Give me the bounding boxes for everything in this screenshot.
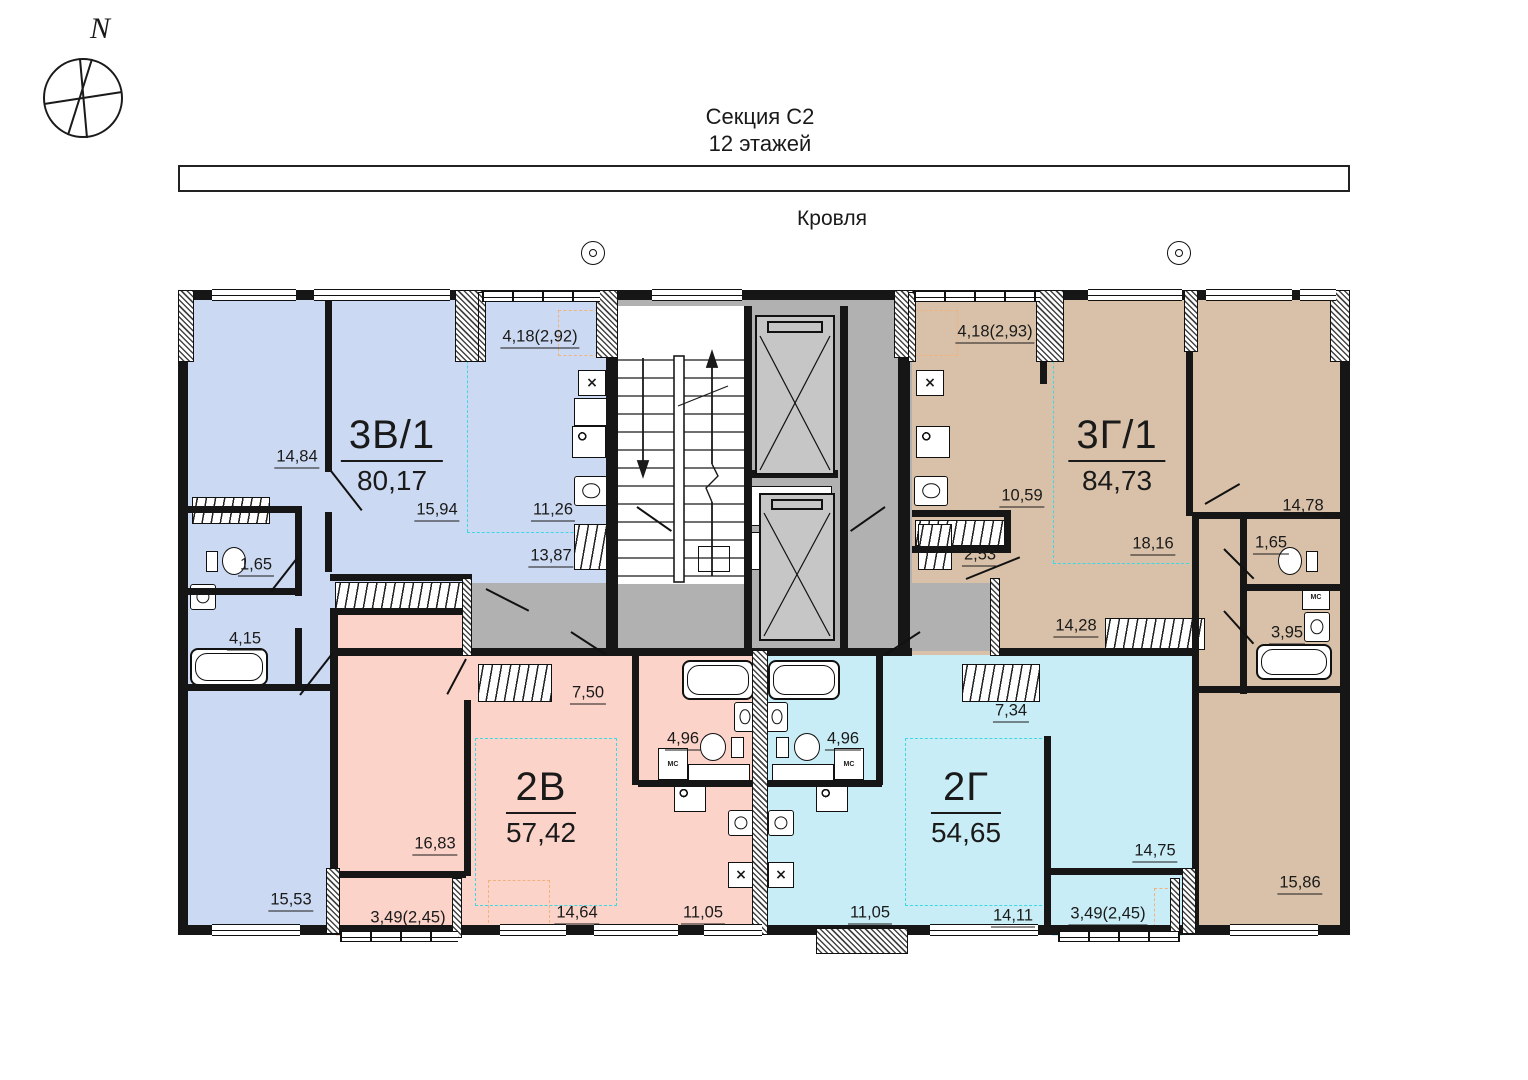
wall — [295, 506, 302, 596]
room-label-blue-kitchen: 11,26 — [531, 501, 575, 522]
apartment-2g-name: 2Г — [931, 765, 1001, 814]
roof-vent — [581, 241, 605, 265]
apartment-2g-area: 54,65 — [931, 814, 1001, 849]
toilet — [776, 732, 820, 762]
floor-plan-canvas: N Секция С2 12 этажей Кровля МСМСМС — [0, 0, 1528, 1080]
room-label-pink-kitchen: 11,05 — [681, 904, 725, 925]
hatched-wall-pier — [178, 290, 194, 362]
bathtub — [768, 660, 840, 700]
window — [594, 924, 678, 936]
room-label-tan-balcony: 4,18(2,93) — [955, 323, 1034, 344]
bathtub — [1256, 644, 1332, 680]
room-label-tan-living: 18,16 — [1130, 535, 1175, 556]
sink — [914, 476, 948, 506]
room-label-cyan-balcony: 3,49(2,45) — [1068, 905, 1147, 926]
x-symbol-box — [578, 370, 606, 396]
hatched-wall-pier — [452, 878, 462, 938]
wall — [330, 608, 472, 615]
hatched-wall-pier — [462, 578, 472, 656]
x-symbol-box — [916, 370, 944, 396]
apartment-3v1-area: 80,17 — [341, 462, 443, 497]
sink — [728, 810, 754, 836]
roof-line — [178, 190, 1350, 192]
wall — [1044, 736, 1051, 928]
apartment-2g-title: 2Г 54,65 — [931, 765, 1001, 849]
section-title-block: Секция С2 12 этажей — [660, 103, 860, 157]
compass: N — [30, 8, 140, 143]
hatched-wall-pier — [478, 292, 486, 362]
wall — [998, 648, 1194, 656]
wall — [1340, 290, 1350, 935]
x-symbol-box — [728, 862, 754, 888]
sink — [766, 702, 788, 732]
room-label-blue-bedroom2: 15,53 — [268, 891, 313, 912]
room-label-blue-bath: 4,15 — [227, 630, 263, 651]
zone-dashed-line — [1053, 563, 1189, 564]
apartment-3g1-name: 3Г/1 — [1068, 413, 1165, 462]
room-label-tan-wc: 1,65 — [1253, 534, 1289, 555]
wall — [325, 512, 332, 572]
wall — [632, 655, 639, 785]
apartment-2v-name: 2В — [506, 765, 576, 814]
room-label-pink-hall: 7,50 — [570, 684, 606, 705]
wardrobe — [962, 664, 1040, 702]
room-label-pink-bedroom: 16,83 — [412, 835, 457, 856]
wall — [1048, 868, 1196, 875]
elevators — [748, 306, 842, 650]
hatched-wall-pier — [1184, 290, 1198, 352]
room-label-cyan-hall: 7,34 — [993, 702, 1029, 723]
window — [704, 924, 762, 936]
room-label-tan-bath: 3,95 — [1269, 624, 1305, 645]
stove — [816, 784, 848, 812]
window — [500, 924, 566, 936]
room-label-cyan-living: 14,11 — [991, 907, 1035, 928]
apartment-3g1-fill — [1195, 512, 1345, 933]
sink — [768, 810, 794, 836]
wardrobe — [1105, 618, 1205, 650]
bathtub — [682, 660, 754, 700]
window — [1206, 289, 1292, 301]
wall — [638, 780, 756, 787]
apartment-3g1-title: 3Г/1 84,73 — [1068, 413, 1165, 497]
hatched-wall-pier — [908, 292, 916, 362]
window — [314, 289, 450, 301]
hatched-wall-pier — [990, 578, 1000, 656]
window — [652, 289, 742, 301]
staircase — [618, 306, 744, 588]
room-label-blue-balcony: 4,18(2,92) — [500, 328, 579, 349]
kitchen-counter — [574, 398, 608, 426]
bathtub — [190, 648, 268, 686]
hatched-wall-pier — [1182, 868, 1196, 934]
apartment-3v1-name: 3В/1 — [341, 413, 443, 462]
toilet — [700, 732, 744, 762]
room-label-blue-hall: 13,87 — [528, 547, 573, 568]
balcony-dashed-rect — [914, 310, 958, 356]
roof-line — [1348, 165, 1350, 192]
apartment-3g1-area: 84,73 — [1068, 462, 1165, 497]
corridor-fill — [470, 583, 1000, 651]
wall — [1247, 584, 1345, 591]
wall — [186, 684, 338, 691]
room-label-tan-bedroom: 14,78 — [1280, 497, 1325, 518]
balcony-glazing — [1058, 931, 1180, 942]
window — [1300, 289, 1336, 301]
wall — [186, 506, 302, 513]
room-label-pink-balcony: 3,49(2,45) — [368, 909, 447, 930]
room-label-tan-hall: 14,28 — [1053, 617, 1098, 638]
hatched-wall-pier — [816, 928, 908, 954]
wall — [464, 700, 471, 876]
wall — [186, 588, 302, 595]
section-floors: 12 этажей — [660, 130, 860, 157]
balcony-glazing — [482, 291, 600, 302]
balcony-glazing — [340, 931, 458, 942]
washing-machine: МС — [658, 748, 688, 780]
room-label-blue-living: 15,94 — [414, 501, 459, 522]
apartment-2v-title: 2В 57,42 — [506, 765, 576, 849]
roof-line — [178, 165, 180, 192]
hatched-wall-pier — [1036, 290, 1064, 362]
balcony-dashed-rect — [488, 880, 550, 928]
wall — [330, 871, 466, 878]
wall — [1004, 510, 1011, 553]
section-title: Секция С2 — [660, 103, 860, 130]
roof-vent — [1167, 241, 1191, 265]
hatched-wall-pier — [326, 868, 340, 934]
window — [1230, 924, 1318, 936]
room-label-cyan-kitchen: 11,05 — [848, 904, 892, 925]
apartment-3v1-title: 3В/1 80,17 — [341, 413, 443, 497]
washing-machine: МС — [834, 748, 864, 780]
window — [212, 924, 300, 936]
wall — [764, 780, 882, 787]
room-label-cyan-bath: 4,96 — [825, 730, 861, 751]
room-label-blue-bedroom: 14,84 — [274, 448, 319, 469]
apartment-2v-area: 57,42 — [506, 814, 576, 849]
wall — [876, 655, 883, 785]
x-symbol-box — [768, 862, 794, 888]
window — [1088, 289, 1182, 301]
hatched-wall-pier — [752, 650, 768, 935]
stove — [572, 426, 606, 458]
hatched-wall-pier — [1170, 878, 1180, 938]
wall — [912, 510, 1010, 517]
wall — [178, 290, 188, 935]
stove — [916, 426, 950, 458]
room-label-cyan-bedroom: 14,75 — [1132, 842, 1177, 863]
wardrobe — [478, 664, 552, 702]
wall — [1199, 686, 1345, 693]
wall — [325, 300, 332, 472]
wall — [1240, 518, 1247, 694]
room-label-tan-kitchen: 10,59 — [999, 487, 1044, 508]
room-label-pink-bath: 4,96 — [665, 730, 701, 751]
room-label-pink-living: 14,64 — [554, 904, 599, 925]
wardrobe — [574, 524, 608, 570]
room-label-tan-wardrobe: 2,53 — [962, 546, 998, 567]
sink — [574, 476, 608, 506]
room-label-blue-wc: 1,65 — [238, 556, 274, 577]
roof-label: Кровля — [797, 207, 867, 231]
window — [212, 289, 296, 301]
roof-line — [178, 165, 1350, 167]
compass-north-label: N — [89, 12, 112, 45]
sink — [1304, 612, 1330, 642]
balcony-glazing — [914, 291, 1040, 302]
stove — [674, 784, 706, 812]
wall — [295, 628, 302, 688]
wall — [330, 574, 472, 581]
room-label-tan-bedroom2: 15,86 — [1277, 874, 1322, 895]
